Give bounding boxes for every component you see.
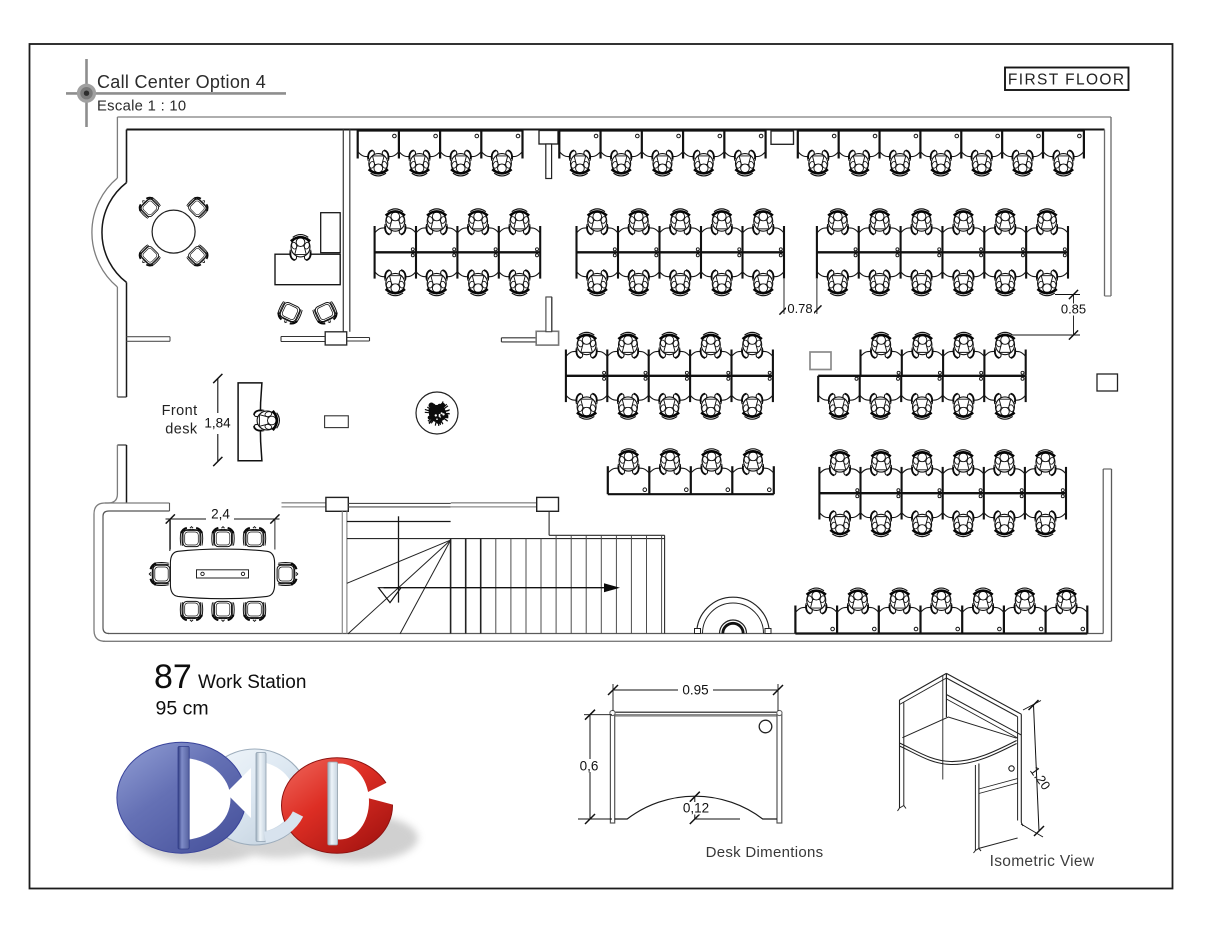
svg-text:0,6: 0,6 (580, 759, 599, 774)
svg-text:2,4: 2,4 (211, 507, 230, 522)
svg-text:0.85: 0.85 (1061, 302, 1086, 317)
svg-text:95 cm: 95 cm (156, 698, 209, 720)
svg-text:FIRST FLOOR: FIRST FLOOR (1008, 72, 1126, 89)
svg-text:Isometric View: Isometric View (990, 853, 1095, 870)
svg-text:1,84: 1,84 (204, 416, 231, 431)
svg-text:87: 87 (154, 658, 192, 696)
svg-text:0.78: 0.78 (787, 301, 812, 316)
svg-text:Escale 1 : 10: Escale 1 : 10 (97, 99, 186, 115)
svg-text:Work Station: Work Station (198, 672, 306, 693)
svg-text:0.95: 0.95 (682, 683, 708, 698)
svg-text:0,12: 0,12 (683, 801, 709, 816)
svg-text:desk: desk (165, 422, 198, 438)
svg-text:Call Center Option 4: Call Center Option 4 (97, 72, 266, 92)
svg-text:Desk Dimentions: Desk Dimentions (706, 844, 824, 861)
svg-text:Front: Front (162, 403, 198, 419)
